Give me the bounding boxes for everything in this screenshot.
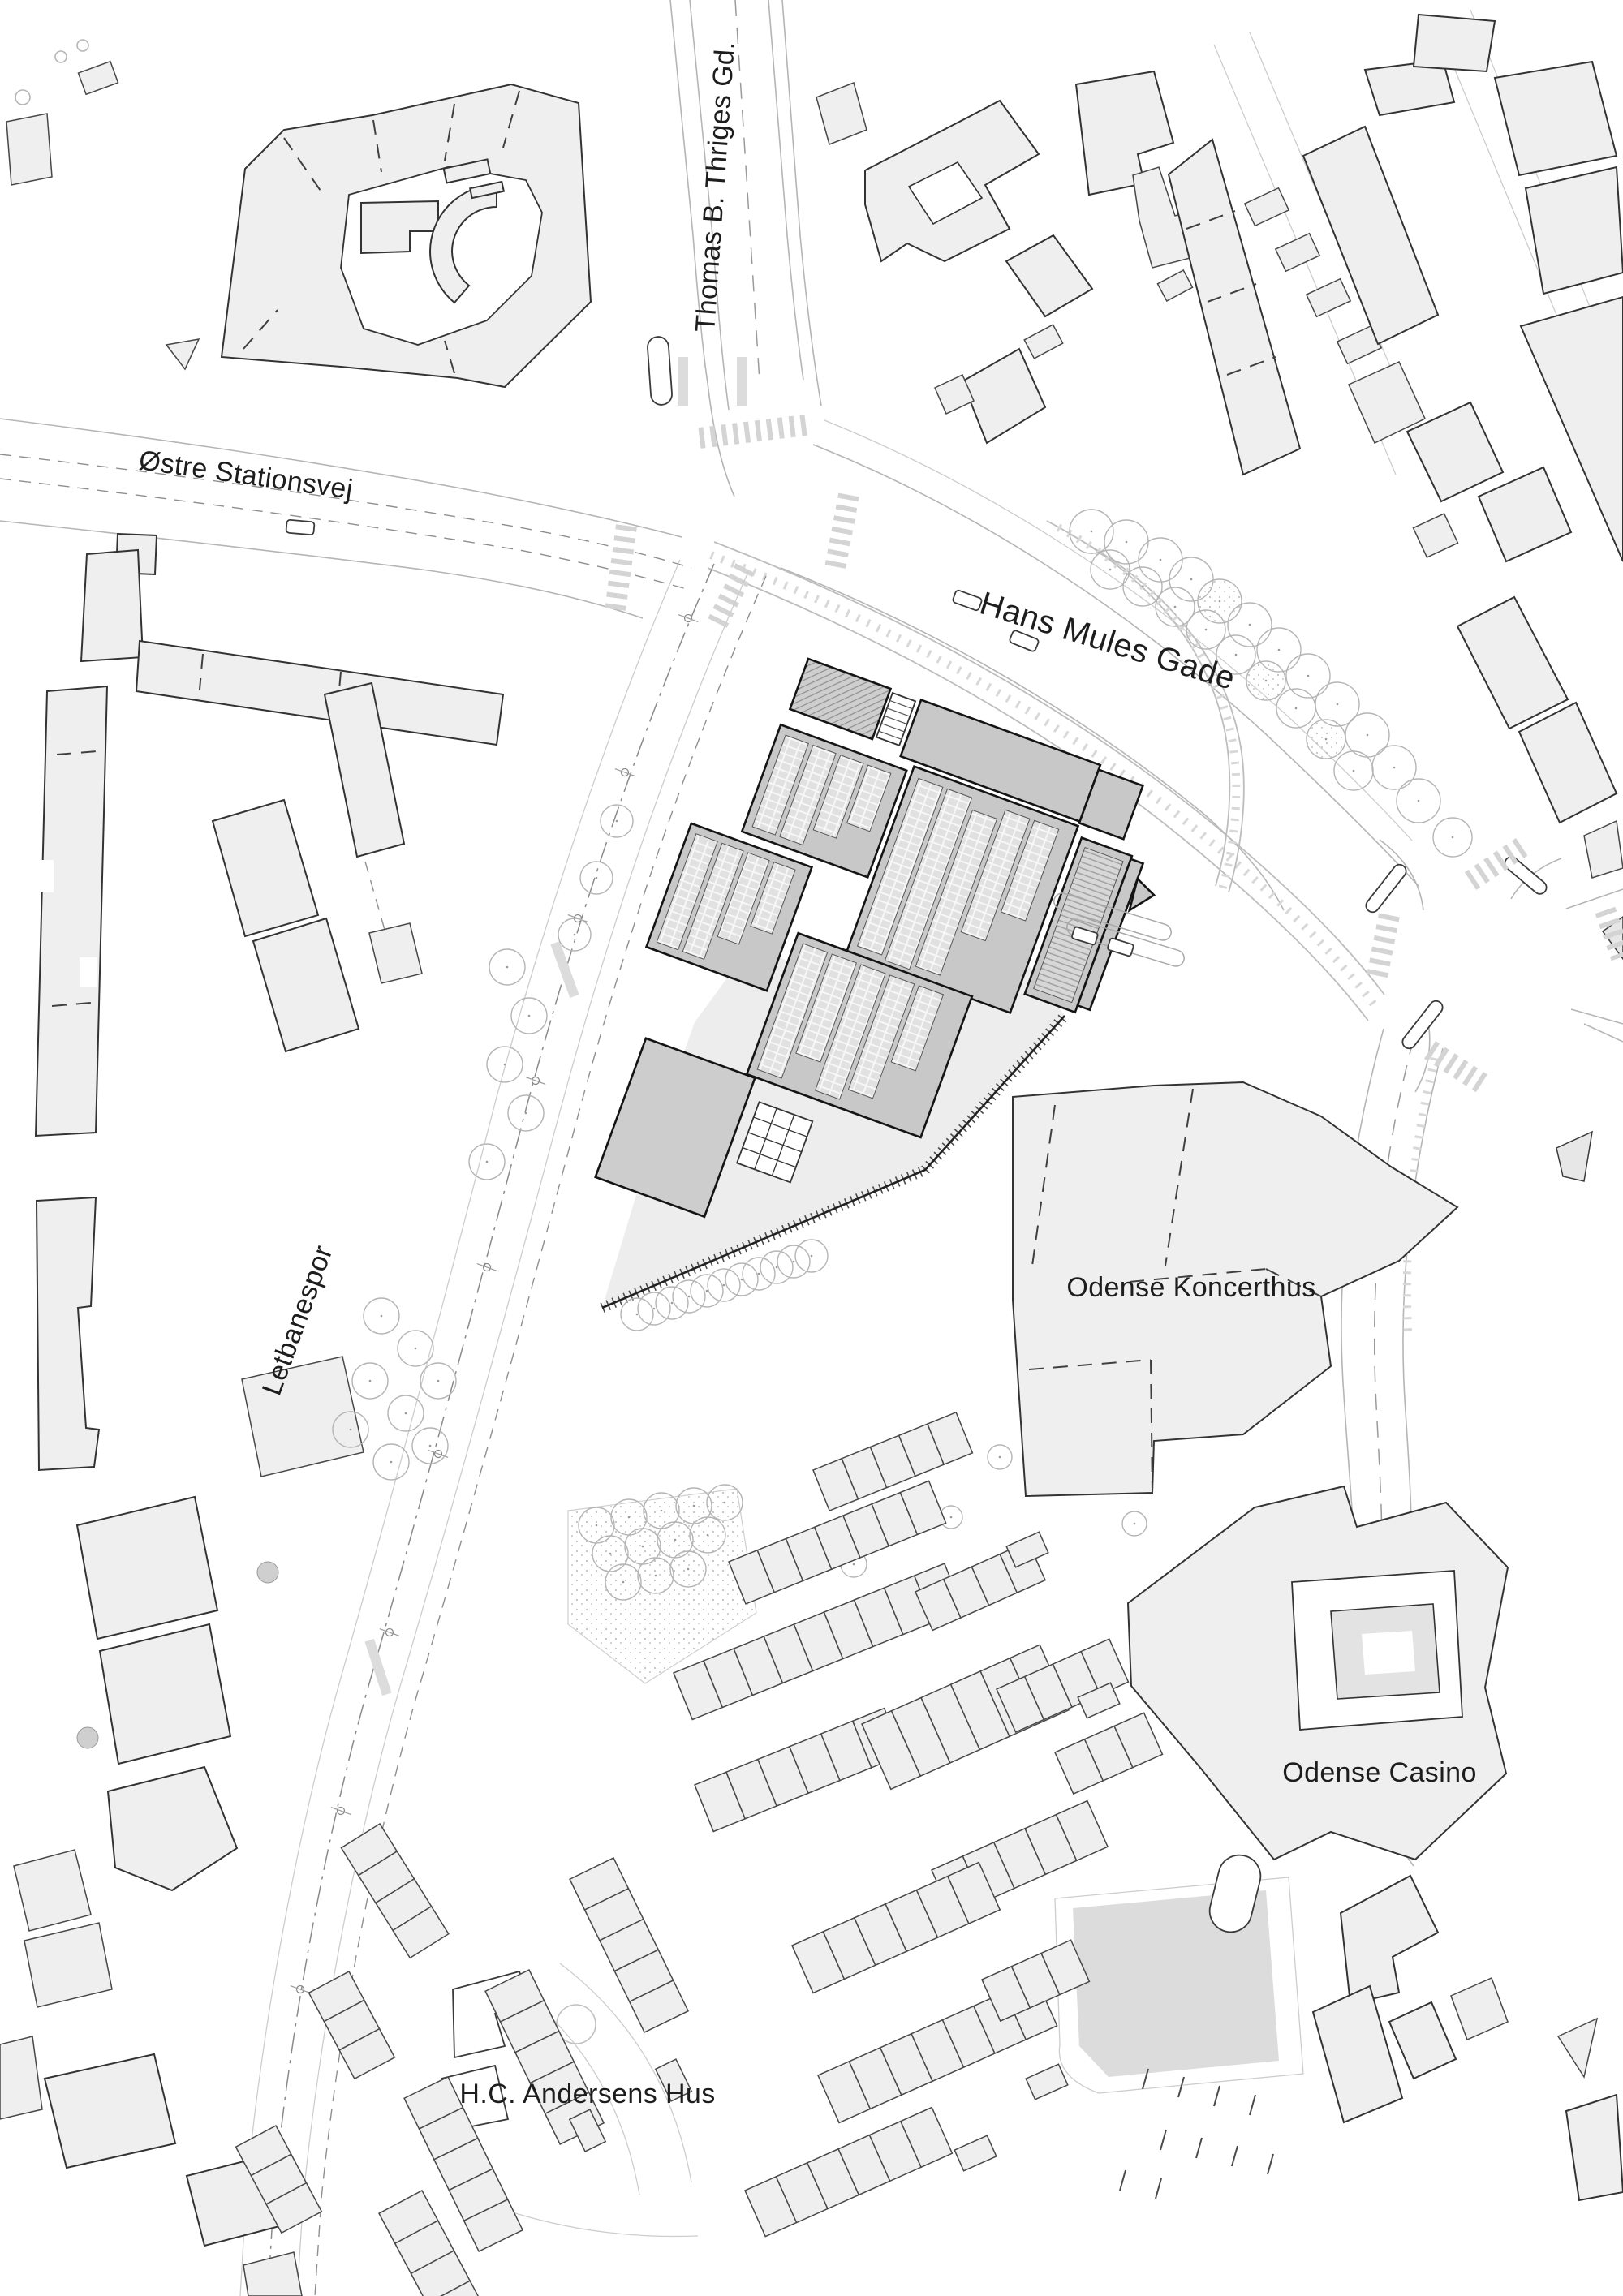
tree-center-dot — [853, 1563, 855, 1566]
traffic-island — [1363, 862, 1409, 914]
tree-center-dot — [1278, 649, 1281, 651]
tree-center-dot — [1142, 586, 1144, 588]
tree-center-dot — [1265, 680, 1268, 682]
rowhouse-row — [309, 1971, 395, 2079]
tree-center-dot — [724, 1502, 726, 1504]
rowhouse-row — [570, 1858, 688, 2032]
west-wing-long — [36, 686, 107, 1136]
block — [1307, 279, 1350, 317]
tree — [15, 90, 30, 105]
tree-center-dot — [1452, 836, 1454, 839]
tree-center-dot — [429, 1445, 432, 1447]
fountain — [77, 1727, 98, 1748]
landmark-label-hc-andersens-hus: H.C. Andersens Hus — [459, 2079, 715, 2109]
tree-center-dot — [1109, 569, 1112, 571]
rowhouse-row — [792, 1863, 1000, 1993]
block — [1245, 188, 1289, 226]
tree-center-dot — [1367, 734, 1369, 737]
buildings-west — [36, 534, 503, 1470]
street-label-ostre-stationsvej: Østre Stationsvej — [137, 445, 355, 505]
tree-center-dot — [1295, 707, 1298, 710]
casino-area — [1128, 1486, 1508, 1860]
catenary-crossarm — [615, 769, 635, 776]
parking-mark — [1268, 2154, 1273, 2174]
hall-northwest-hatched — [790, 659, 890, 739]
fountain — [257, 1562, 278, 1583]
block — [1526, 167, 1623, 294]
tree-center-dot — [661, 1510, 663, 1512]
block — [1414, 15, 1495, 71]
block — [1006, 235, 1092, 316]
tree-center-dot — [1126, 541, 1128, 544]
buildings-southeast — [1313, 1876, 1623, 2200]
block — [1566, 2095, 1623, 2200]
block — [0, 2036, 42, 2119]
block — [100, 1624, 230, 1764]
tree-center-dot — [574, 934, 576, 936]
catenary-crossarm — [331, 1808, 351, 1815]
tree-center-dot — [950, 1516, 953, 1519]
tree-center-dot — [653, 1308, 656, 1310]
tree-center-dot — [1249, 624, 1251, 626]
buildings-northcenter — [816, 71, 1203, 443]
block — [1341, 1876, 1438, 2004]
tree-center-dot — [381, 1315, 383, 1318]
tree-center-dot — [758, 1273, 760, 1275]
rowhouse-row — [342, 1824, 449, 1958]
block — [962, 349, 1045, 443]
block — [242, 1357, 364, 1477]
block — [369, 923, 422, 983]
rowhouse — [1006, 1532, 1048, 1567]
block — [14, 1850, 91, 1931]
tree-center-dot — [1307, 675, 1310, 677]
terrace-strip — [1169, 140, 1300, 475]
tree-center-dot — [706, 1290, 708, 1292]
tree-center-dot — [369, 1380, 372, 1382]
tree-center-dot — [687, 1568, 690, 1571]
tree-center-dot — [1393, 767, 1396, 769]
parking-mark — [1250, 2095, 1255, 2115]
tree-center-dot — [1219, 600, 1221, 603]
tree-center-dot — [642, 1546, 644, 1548]
west-wing-north — [136, 641, 503, 745]
tree-center-dot — [671, 1302, 674, 1305]
rowhouse-row — [745, 2108, 952, 2237]
tree-center-dot — [1205, 629, 1208, 631]
site-plan-page: Thomas B. Thriges Gd. Østre Stationsvej … — [0, 0, 1623, 2296]
bus-bay-island — [647, 336, 673, 406]
tree-center-dot — [636, 1314, 639, 1316]
wing-notch — [80, 957, 97, 987]
block — [1558, 2019, 1597, 2077]
block — [77, 1497, 217, 1639]
tree-center-dot — [616, 820, 618, 823]
block — [1519, 703, 1617, 823]
catenary-crossarm — [678, 615, 698, 622]
block — [1584, 821, 1623, 878]
block — [24, 1923, 112, 2007]
landmark-label-koncerthus: Odense Koncerthus — [1066, 1272, 1315, 1303]
block — [45, 2054, 175, 2168]
parking-mark — [1160, 2130, 1166, 2150]
tree-center-dot — [723, 1284, 725, 1287]
parking-mark — [1156, 2178, 1161, 2199]
block — [213, 800, 318, 936]
buildings-northeast — [1169, 10, 1623, 878]
block — [816, 83, 867, 144]
landmark-label-casino: Odense Casino — [1282, 1757, 1477, 1788]
tram-platform — [550, 941, 579, 998]
tree-center-dot — [707, 1534, 709, 1537]
tree-center-dot — [504, 1064, 506, 1066]
tree-center-dot — [1091, 531, 1093, 533]
parking-mark — [1196, 2138, 1202, 2158]
car-icons — [286, 520, 1039, 652]
casino-inner-court — [1362, 1631, 1415, 1675]
small-building — [166, 339, 199, 369]
tree-center-dot — [674, 1539, 677, 1541]
parking-mark — [1232, 2146, 1238, 2166]
tram-platform — [678, 357, 688, 406]
traffic-island — [1556, 1132, 1592, 1181]
tree-center-dot — [1337, 703, 1339, 706]
tree — [77, 40, 88, 51]
tree-center-dot — [811, 1255, 813, 1258]
tree-center-dot — [741, 1279, 743, 1281]
tree-center-dot — [1134, 1523, 1136, 1525]
block — [1414, 514, 1458, 557]
parking-dashes — [1120, 2069, 1273, 2199]
rowhouse — [954, 2135, 997, 2170]
tree-center-dot — [506, 966, 509, 969]
car-icon — [952, 590, 982, 612]
site-plan-canvas: Thomas B. Thriges Gd. Østre Stationsvej … — [0, 0, 1623, 2296]
catenary-crossarm — [477, 1264, 497, 1271]
tree-center-dot — [693, 1505, 695, 1507]
block — [1457, 597, 1568, 729]
block — [1451, 1978, 1508, 2040]
tree-center-dot — [596, 1524, 598, 1527]
tram-platform — [737, 357, 747, 406]
tree-center-dot — [415, 1348, 417, 1350]
tree-center-dot — [655, 1575, 657, 1577]
field-area — [1055, 1851, 1303, 2199]
small-building — [6, 114, 52, 185]
tree-center-dot — [390, 1461, 393, 1464]
tree-center-dot — [688, 1296, 691, 1298]
tree-center-dot — [793, 1261, 795, 1263]
traffic-island — [1502, 854, 1549, 896]
car-icon — [286, 520, 314, 535]
block — [108, 1767, 237, 1890]
tree-center-dot — [1325, 738, 1328, 741]
block — [253, 918, 359, 1051]
tree-center-dot — [486, 1161, 489, 1163]
block — [1157, 270, 1192, 301]
tree-center-dot — [1235, 654, 1238, 656]
block — [1495, 62, 1617, 175]
tree-center-dot — [405, 1412, 407, 1415]
parking-mark — [1178, 2077, 1184, 2097]
tree-center-dot — [1160, 559, 1162, 561]
tree-center-dot — [628, 1516, 631, 1519]
tree-center-dot — [350, 1429, 352, 1431]
tree-center-dot — [437, 1380, 440, 1382]
parking-mark — [1214, 2086, 1220, 2106]
block — [1024, 325, 1063, 359]
rowhouse-row — [1055, 1713, 1162, 1794]
tree-center-dot — [999, 1456, 1001, 1459]
block — [81, 550, 143, 661]
west-edge-wing — [37, 1197, 99, 1470]
wing-notch — [37, 860, 54, 892]
tree-center-dot — [1190, 578, 1193, 581]
catenary-crossarm — [291, 1986, 310, 1993]
block — [1313, 1986, 1402, 2122]
tree-center-dot — [1418, 800, 1420, 802]
tree-center-dot — [525, 1112, 527, 1115]
buildings-northwest — [6, 40, 591, 387]
buildings-southwest — [0, 1357, 364, 2296]
block — [1389, 2002, 1456, 2079]
tree-center-dot — [596, 877, 598, 879]
block — [1276, 234, 1319, 272]
catenary-crossarm — [526, 1077, 545, 1085]
tree-center-dot — [1174, 606, 1177, 608]
small-building — [78, 62, 118, 95]
tree-center-dot — [1353, 770, 1355, 772]
tree-center-dot — [622, 1581, 625, 1584]
block — [243, 2252, 302, 2296]
tree — [55, 51, 67, 62]
tree-center-dot — [776, 1266, 778, 1269]
tree-center-dot — [609, 1553, 612, 1555]
tree-center-dot — [528, 1015, 531, 1017]
parking-mark — [1120, 2170, 1126, 2191]
rowhouse — [1026, 2064, 1068, 2099]
block — [1479, 467, 1571, 561]
